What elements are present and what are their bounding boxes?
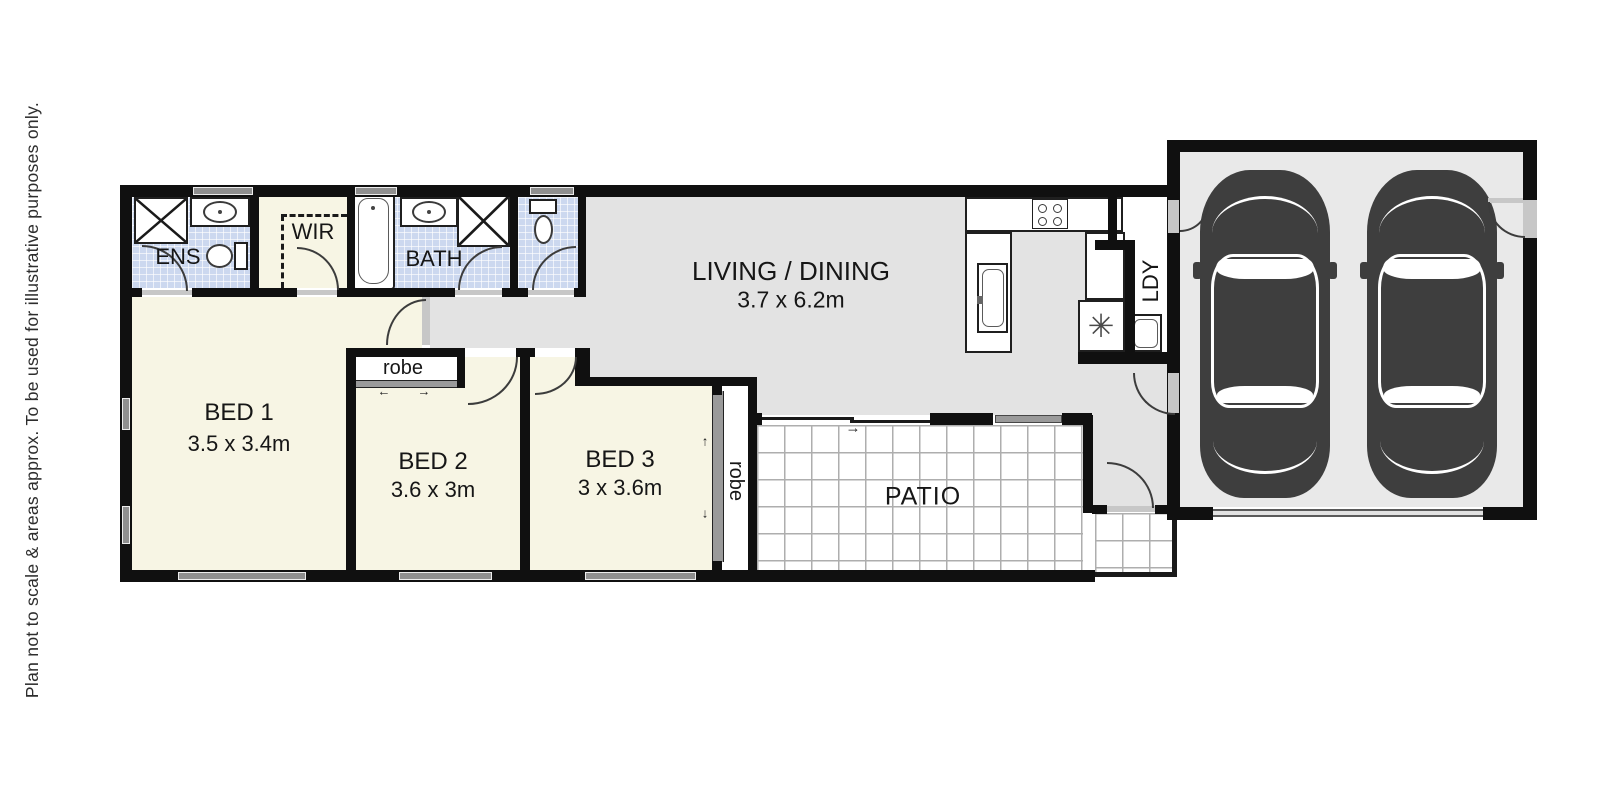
- cooktop-burner-icon: [1038, 217, 1047, 226]
- porch-edge: [1172, 513, 1177, 575]
- basin-drain-icon: [427, 210, 431, 214]
- interior-wall: [748, 377, 757, 570]
- car-icon: [1200, 170, 1330, 498]
- slide-left-icon: ←: [378, 385, 391, 398]
- car-mirror: [1360, 262, 1369, 279]
- slide-down-icon: ↓: [702, 507, 709, 520]
- door-opening: [1168, 200, 1179, 233]
- interior-wall: [520, 348, 530, 570]
- toilet-icon: [529, 199, 557, 214]
- window: [193, 187, 253, 195]
- door-opening: [455, 290, 502, 295]
- interior-wall: [337, 288, 455, 297]
- living-dining-floor: [757, 297, 1092, 415]
- interior-wall: [510, 197, 518, 288]
- window: [355, 187, 397, 195]
- cooktop-burner-icon: [1053, 217, 1062, 226]
- car-mirror: [1328, 262, 1337, 279]
- robe-sliding-door: [712, 391, 724, 562]
- bathtub-drain-icon: [371, 206, 375, 210]
- interior-wall: [346, 348, 356, 570]
- car-windshield: [1383, 259, 1481, 279]
- porch-edge: [1095, 572, 1177, 577]
- robe-sliding-door: [356, 380, 457, 388]
- slide-up-icon: ↑: [702, 435, 709, 448]
- door-opening: [528, 290, 574, 295]
- bed1-floor: [132, 348, 346, 570]
- interior-wall: [1125, 250, 1135, 352]
- shower-icon: [457, 195, 510, 247]
- interior-wall: [1108, 197, 1117, 240]
- bed1-floor: [132, 297, 422, 348]
- hot-water-icon: ✳: [1088, 310, 1115, 342]
- car-icon: [1367, 170, 1497, 498]
- door-opening: [297, 290, 337, 295]
- interior-wall: [192, 288, 297, 297]
- slide-right-icon: →: [846, 421, 861, 436]
- interior-wall: [1095, 240, 1135, 250]
- window: [585, 572, 696, 580]
- garage-door: [1213, 509, 1483, 517]
- window: [122, 506, 130, 544]
- sliding-door-panel: [930, 413, 993, 425]
- window: [122, 398, 130, 430]
- interior-wall: [457, 348, 465, 388]
- room-label-bed2: BED 2: [398, 450, 467, 474]
- car-cabin: [1378, 254, 1486, 408]
- porch-floor: [1095, 513, 1172, 572]
- interior-wall: [346, 348, 465, 357]
- toilet-icon: [234, 242, 248, 270]
- toilet-icon: [534, 215, 553, 244]
- slide-right-icon: →: [418, 385, 431, 398]
- window: [399, 572, 492, 580]
- bathtub-icon: [358, 198, 389, 284]
- room-label-robe: robe: [726, 461, 746, 501]
- window: [530, 187, 574, 195]
- basin-drain-icon: [218, 210, 222, 214]
- garage-wall: [1167, 140, 1180, 520]
- room-label-living: LIVING / DINING: [692, 258, 890, 284]
- living-dining-floor: [586, 297, 757, 377]
- car-rear-window: [1217, 386, 1313, 403]
- interior-wall: [583, 377, 757, 386]
- cooktop-burner-icon: [1038, 204, 1047, 213]
- car-mirror: [1495, 262, 1504, 279]
- shower-x-icon: [136, 199, 186, 242]
- laundry-tub-icon: [1134, 319, 1158, 348]
- room-dims-bed1: 3.5 x 3.4m: [188, 433, 291, 455]
- car-rear-window: [1384, 386, 1480, 403]
- garage-wall: [1167, 140, 1537, 152]
- car-windshield: [1216, 259, 1314, 279]
- interior-wall: [1083, 415, 1093, 513]
- interior-wall: [1092, 505, 1107, 514]
- interior-wall: [347, 197, 355, 288]
- room-dims-living: 3.7 x 6.2m: [737, 289, 844, 312]
- room-label-bed1: BED 1: [204, 401, 273, 425]
- wardrobe-dashed-line: [281, 215, 284, 288]
- sliding-door-track: [762, 417, 854, 420]
- cooktop-burner-icon: [1053, 204, 1062, 213]
- door-opening: [1523, 200, 1537, 238]
- interior-wall: [748, 413, 762, 425]
- window: [178, 572, 306, 580]
- cooktop-icon: [1032, 199, 1068, 229]
- interior-wall: [502, 288, 528, 297]
- interior-wall: [1078, 352, 1173, 364]
- wardrobe-dashed-line: [281, 214, 347, 217]
- room-dims-bed2: 3.6 x 3m: [391, 479, 475, 501]
- room-label-wir: WIR: [292, 221, 335, 243]
- garage-wall: [1523, 140, 1537, 520]
- hallway-floor: [430, 297, 586, 348]
- interior-wall: [120, 288, 142, 297]
- interior-wall: [578, 197, 586, 288]
- shower-icon: [134, 197, 188, 244]
- interior-wall: [250, 197, 259, 288]
- kitchen-sink-icon: [982, 269, 1004, 327]
- car-mirror: [1193, 262, 1202, 279]
- interior-wall: [712, 561, 722, 570]
- room-label-robe: robe: [383, 358, 423, 378]
- tap-icon: [977, 296, 983, 304]
- room-label-ldy: LDY: [1140, 260, 1162, 303]
- room-label-bath: BATH: [405, 248, 462, 270]
- floorplan: Plan not to scale & areas approx. To be …: [0, 0, 1600, 800]
- disclaimer-label: Plan not to scale & areas approx. To be …: [22, 102, 43, 698]
- sliding-door-glass: [995, 415, 1062, 423]
- sliding-door-track: [850, 420, 937, 423]
- car-cabin: [1211, 254, 1319, 408]
- garage-wall: [1483, 507, 1537, 520]
- garage-wall: [1167, 507, 1213, 520]
- toilet-icon: [206, 244, 233, 268]
- room-label-ens: ENS: [155, 246, 200, 268]
- room-label-patio: PATIO: [885, 485, 961, 510]
- room-label-bed3: BED 3: [585, 448, 654, 472]
- shower-x-icon: [459, 197, 508, 245]
- disclaimer-text: Plan not to scale & areas approx. To be …: [12, 0, 52, 800]
- room-dims-bed3: 3 x 3.6m: [578, 477, 662, 499]
- interior-wall: [712, 386, 722, 395]
- exterior-wall: [120, 185, 1172, 197]
